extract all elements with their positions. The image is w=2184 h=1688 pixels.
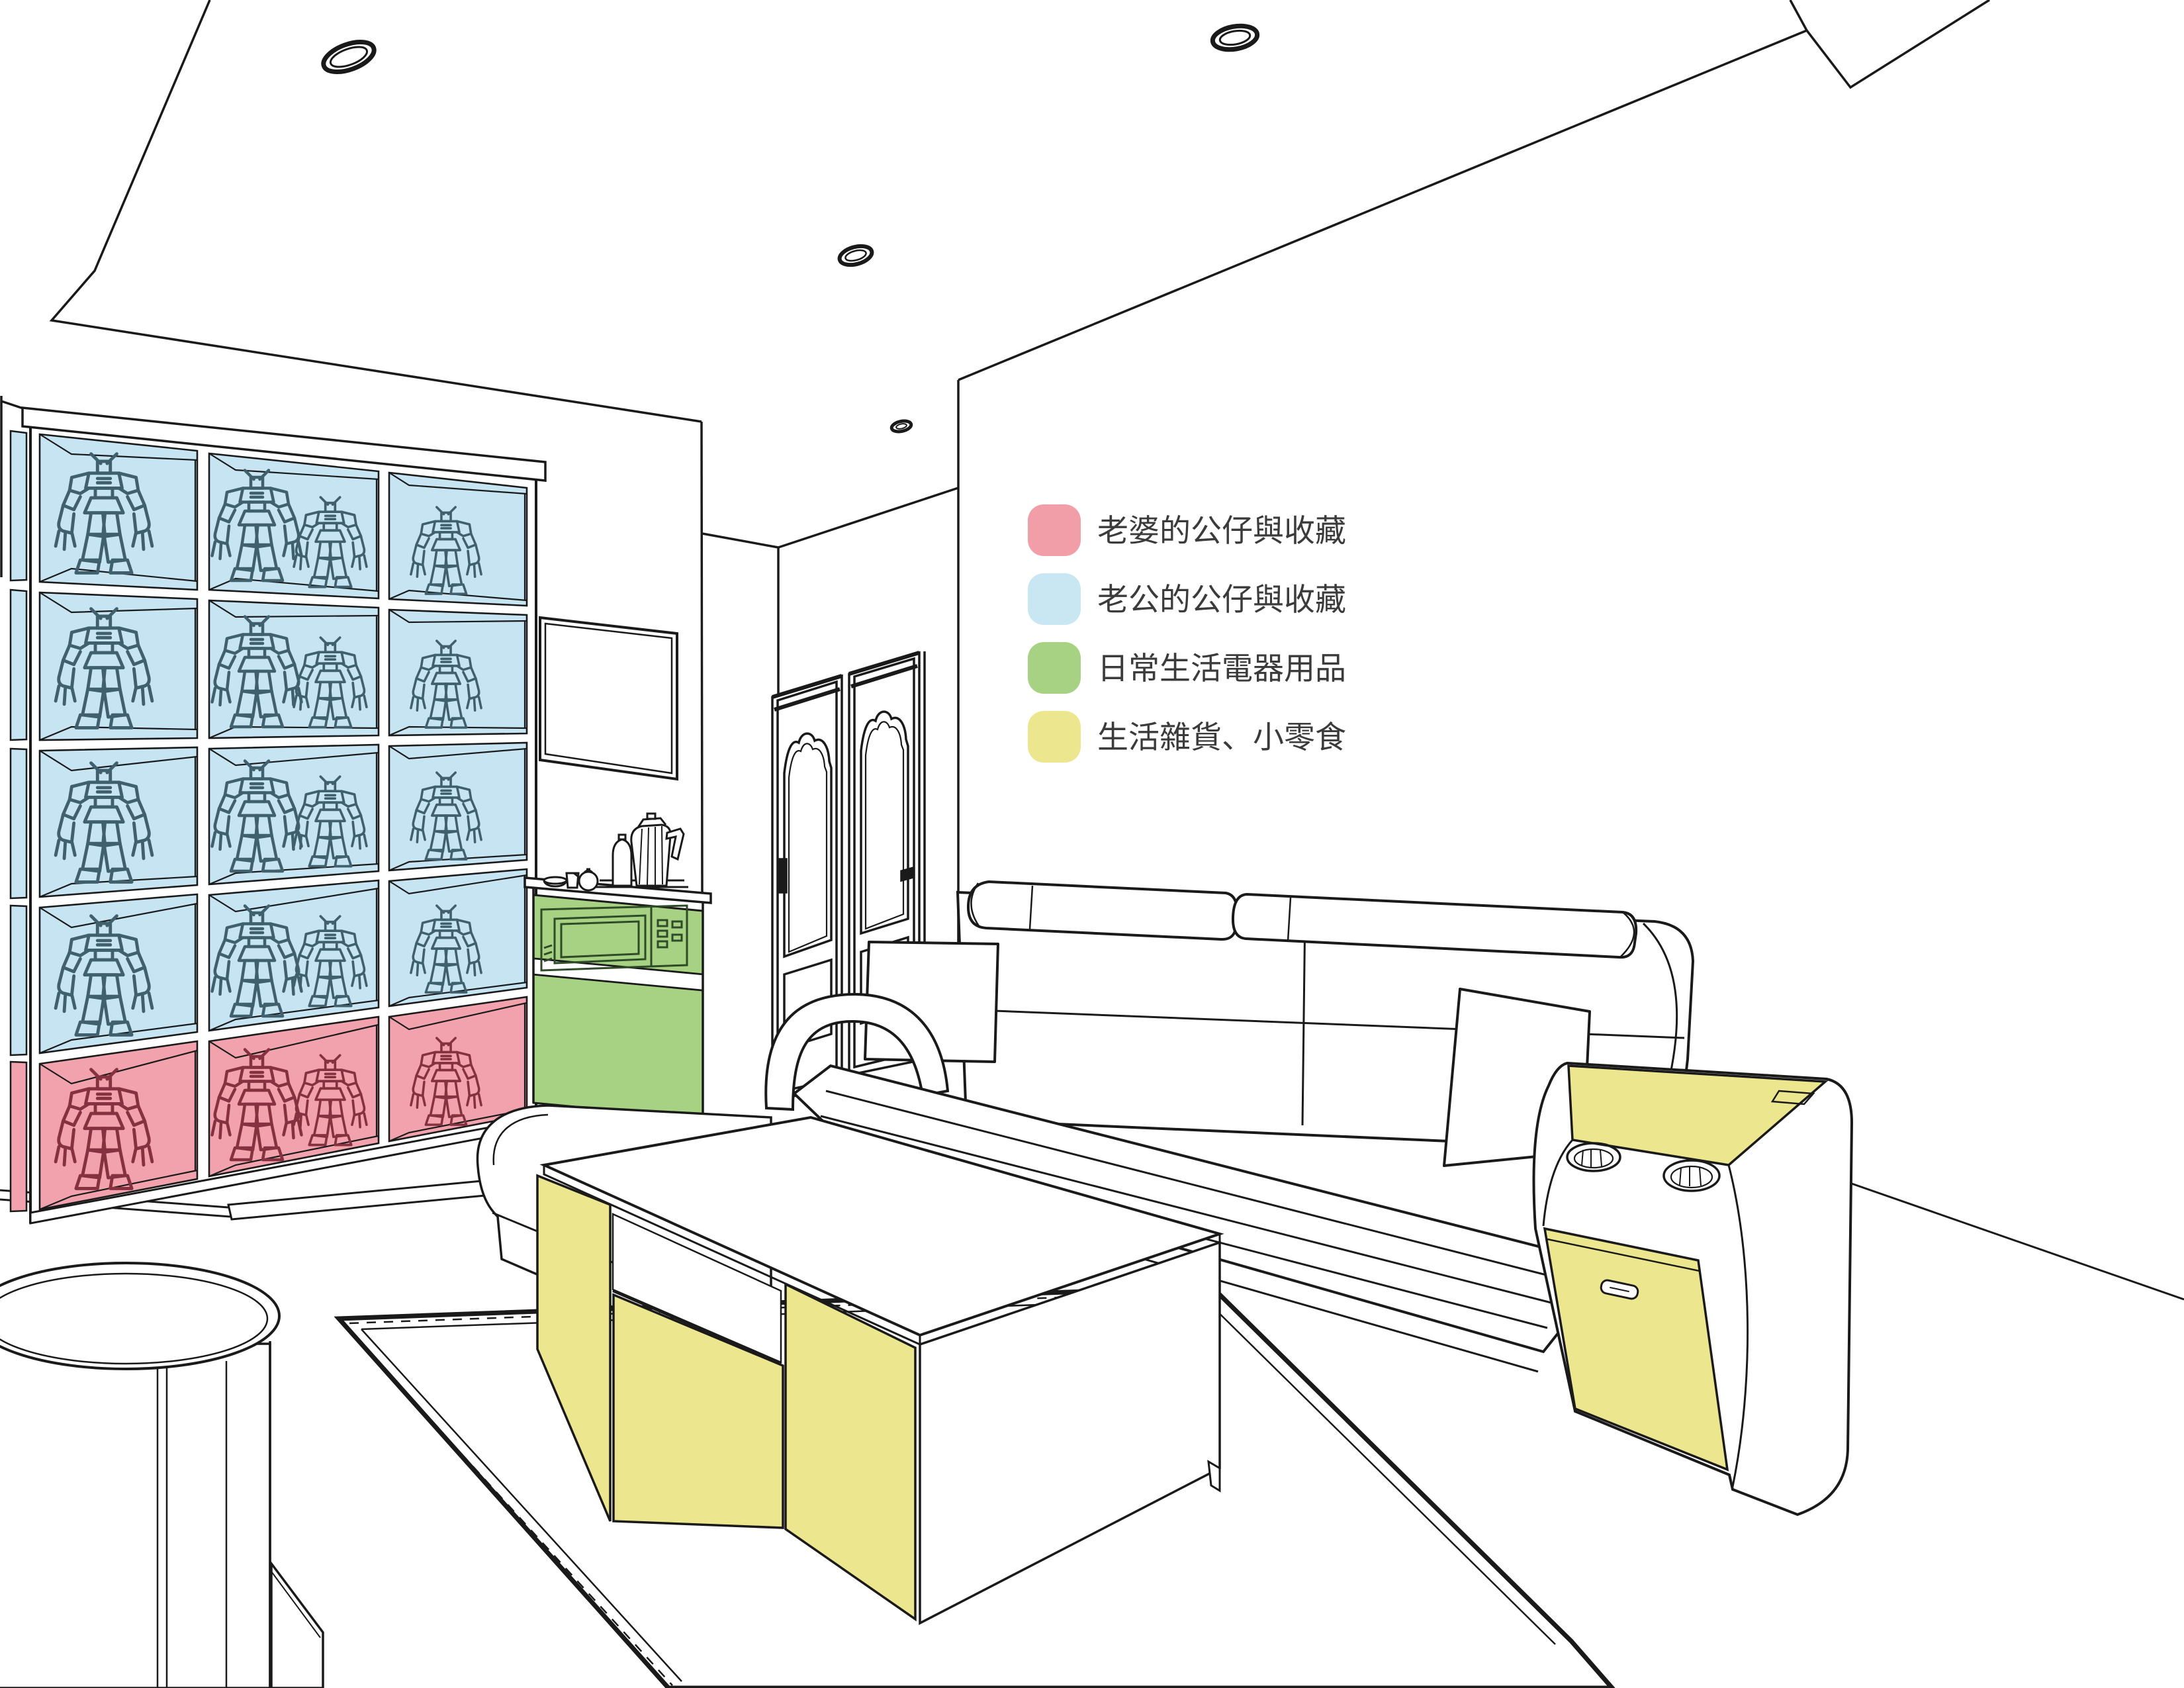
legend-swatch-sundries (1028, 711, 1081, 763)
chaise-platform-board (228, 1181, 485, 1219)
interior-rendering: 老婆的公仔與收藏 老公的公仔與收藏 日常生活電器用品 生活雜貨、小零食 (0, 0, 2184, 1688)
wall-frame (540, 618, 677, 779)
kettle-icon (631, 825, 670, 886)
downlight-icon (320, 36, 378, 77)
legend-label-husband: 老公的公仔與收藏 (1097, 582, 1346, 617)
side-table-drawer (1545, 1229, 1727, 1470)
canister-icon (613, 839, 631, 886)
drum-table (0, 1263, 323, 1688)
appliance-cabinet (525, 814, 711, 1119)
side-table (1534, 1063, 1852, 1515)
legend-swatch-husband (1028, 573, 1081, 625)
legend: 老婆的公仔與收藏 老公的公仔與收藏 日常生活電器用品 生活雜貨、小零食 (1028, 504, 1346, 763)
canister-cap (619, 835, 625, 839)
door-handle-icon (778, 859, 786, 892)
cabinet-lower-doors (533, 974, 703, 1119)
legend-label-sundries: 生活雜貨、小零食 (1097, 720, 1346, 755)
shelf-cell (389, 610, 527, 735)
downlight-icon (1211, 23, 1259, 52)
downlight-icon (837, 243, 874, 268)
counter-items (544, 814, 688, 890)
legend-label-appliances: 日常生活電器用品 (1097, 651, 1346, 686)
drum-table-top (0, 1263, 279, 1369)
teapot-icon (579, 872, 598, 890)
display-shelf (11, 408, 545, 1223)
shelf-sliver-cells (11, 431, 26, 1055)
legend-label-wife: 老婆的公仔與收藏 (1097, 513, 1346, 548)
ceiling-downlights (320, 23, 1259, 433)
bowl-rim (544, 877, 567, 884)
door-handle-icon (901, 868, 913, 880)
legend-swatch-appliances (1028, 642, 1081, 694)
downlight-icon (891, 420, 912, 434)
legend-swatch-wife (1028, 504, 1081, 556)
kettle-knob (647, 814, 655, 819)
shelf-sliver-pink (11, 1062, 26, 1211)
